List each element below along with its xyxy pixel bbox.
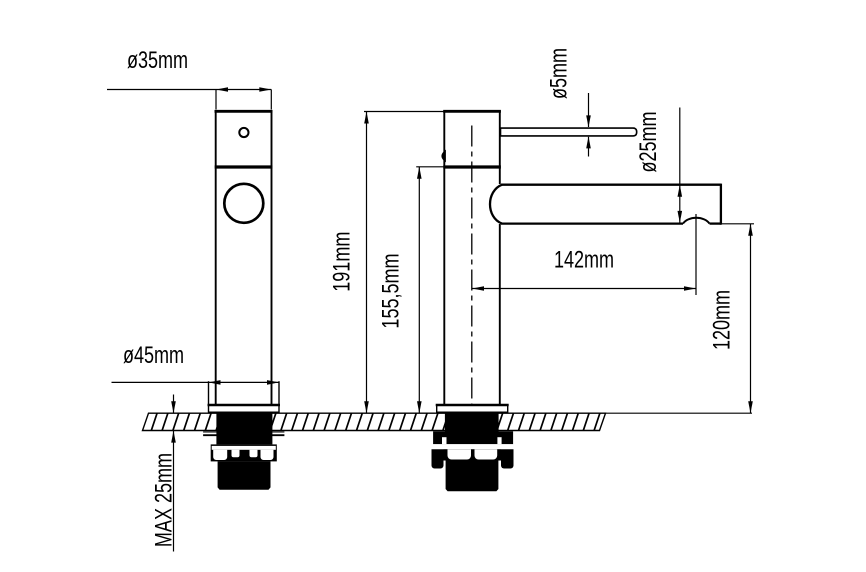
svg-text:ø35mm: ø35mm: [127, 46, 188, 73]
svg-text:155,5mm: 155,5mm: [377, 253, 404, 328]
svg-text:MAX 25mm: MAX 25mm: [150, 453, 177, 547]
svg-text:ø25mm: ø25mm: [634, 111, 661, 172]
svg-text:120mm: 120mm: [708, 290, 735, 350]
svg-text:191mm: 191mm: [328, 232, 355, 292]
svg-text:ø5mm: ø5mm: [545, 48, 572, 99]
svg-text:ø45mm: ø45mm: [123, 341, 184, 368]
svg-text:142mm: 142mm: [554, 246, 614, 273]
